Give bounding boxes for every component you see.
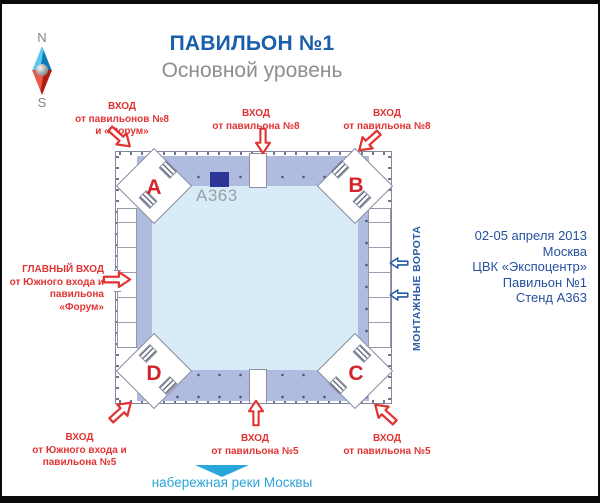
entrance-label-bottom-left: ВХОД от Южного входа и павильона №5: [17, 432, 142, 470]
main-entrance-arrow-icon: [102, 270, 132, 289]
entrance-line: от павильона №5: [327, 446, 447, 459]
entrance-line: от Южного входа и: [17, 445, 142, 458]
entrance-arrow-top-mid-icon: [254, 127, 272, 155]
event-stand: Стенд А363: [417, 290, 587, 306]
entrance-arrow-bottom-mid-icon: [247, 399, 265, 427]
entrance-line: ВХОД: [52, 101, 192, 114]
corner-label-d: D: [146, 362, 161, 386]
entrance-label-top-right: ВХОД от павильона №8: [327, 108, 447, 133]
needle-pivot-icon: [36, 64, 48, 76]
corner-label-c: C: [348, 362, 363, 386]
event-city: Москва: [417, 244, 587, 260]
entrance-line: от павильонов №8: [52, 114, 192, 127]
entrance-label-bottom-mid: ВХОД от павильона №5: [195, 433, 315, 458]
entrance-line: «Форум»: [8, 302, 104, 315]
entrance-line: ГЛАВНЫЙ ВХОД: [8, 264, 104, 277]
entrance-line: павильона: [8, 289, 104, 302]
page-title: ПАВИЛЬОН №1: [132, 32, 372, 56]
page-frame: N S ПАВИЛЬОН №1 Основной уровень: [0, 0, 600, 503]
north-entrance-corridor: [249, 153, 267, 188]
event-info: 02-05 апреля 2013 Москва ЦВК «Экспоцентр…: [417, 228, 587, 306]
entrance-line: от Южного входа и: [8, 277, 104, 290]
river-label: набережная реки Москвы: [122, 475, 342, 490]
corner-label-b: B: [348, 174, 363, 198]
header: ПАВИЛЬОН №1 Основной уровень: [132, 32, 372, 83]
entrance-line: ВХОД: [196, 108, 316, 121]
stand-a363-label: А363: [196, 186, 238, 206]
main-entrance-label: ГЛАВНЫЙ ВХОД от Южного входа и павильона…: [8, 264, 104, 314]
entrance-line: ВХОД: [17, 432, 142, 445]
entrance-line: от павильона №8: [327, 121, 447, 134]
corner-label-a: A: [146, 176, 161, 200]
entrance-line: ВХОД: [195, 433, 315, 446]
entrance-line: ВХОД: [327, 108, 447, 121]
stand-a363-marker: [210, 172, 229, 187]
entrance-line: от павильона №5: [195, 446, 315, 459]
event-pavilion: Павильон №1: [417, 275, 587, 291]
page-subtitle: Основной уровень: [132, 59, 372, 83]
event-venue: ЦВК «Экспоцентр»: [417, 259, 587, 275]
entrance-label-bottom-right: ВХОД от павильона №5: [327, 433, 447, 458]
right-corridor: [368, 208, 391, 348]
entrance-line: павильона №5: [17, 457, 142, 470]
compass-needle-icon: [32, 46, 52, 94]
compass-north-label: N: [26, 30, 58, 45]
event-dates: 02-05 апреля 2013: [417, 228, 587, 244]
floor-plan: A B C D А363: [115, 151, 392, 404]
gate-arrow-lower-icon: [389, 288, 409, 302]
exhibition-hall: [152, 186, 358, 370]
gate-arrow-upper-icon: [389, 256, 409, 270]
entrance-line: ВХОД: [327, 433, 447, 446]
